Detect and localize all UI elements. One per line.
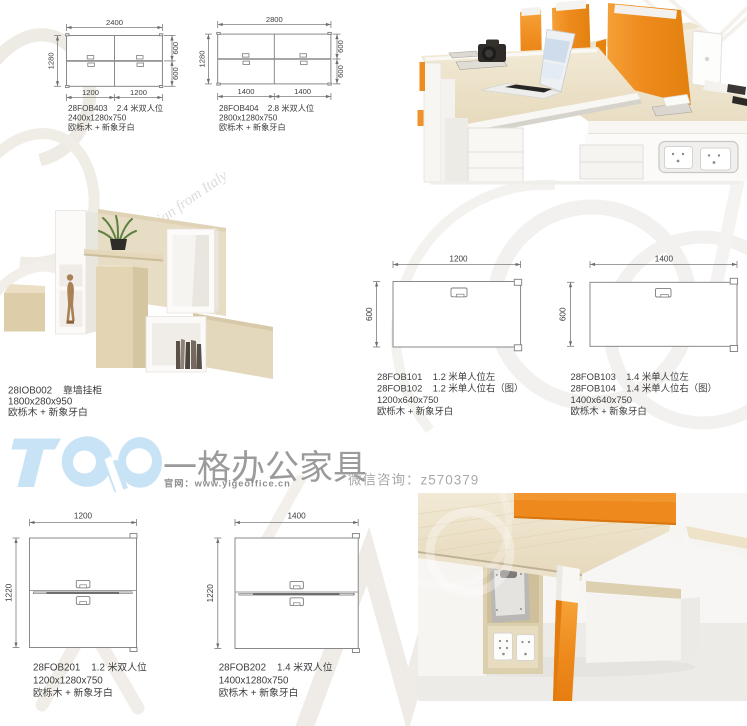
svg-text:1400: 1400	[294, 87, 311, 96]
svg-text:600: 600	[171, 67, 180, 80]
svg-text:欧栎木 + 新象牙白: 欧栎木 + 新象牙白	[33, 686, 113, 699]
svg-text:600: 600	[336, 65, 345, 78]
svg-text:1200: 1200	[82, 88, 99, 97]
svg-text:28FOB404 2.8 米双人位: 28FOB404 2.8 米双人位	[219, 103, 314, 113]
svg-text:1200x1280x750: 1200x1280x750	[33, 675, 103, 686]
svg-text:28FOB103 1.4 米单人位左: 28FOB103 1.4 米单人位左	[571, 371, 689, 382]
svg-text:1400: 1400	[238, 87, 255, 96]
svg-text:1400: 1400	[287, 512, 306, 521]
svg-text:600: 600	[336, 40, 345, 53]
svg-text:1220: 1220	[5, 583, 14, 602]
svg-text:28FOB104 1.4 米单人位右（图）: 28FOB104 1.4 米单人位右（图）	[571, 383, 717, 394]
svg-text:600: 600	[559, 307, 568, 321]
svg-text:2800: 2800	[266, 15, 283, 24]
svg-text:600: 600	[171, 42, 180, 55]
svg-text:1220: 1220	[206, 584, 215, 603]
svg-text:微信咨询：z570379: 微信咨询：z570379	[348, 473, 479, 488]
svg-text:1200: 1200	[130, 88, 147, 97]
svg-text:1200x640x750: 1200x640x750	[377, 394, 439, 405]
svg-text:欧栎木 + 新象牙白: 欧栎木 + 新象牙白	[219, 686, 299, 699]
svg-text:28FOB403 2.4 米双人位: 28FOB403 2.4 米双人位	[68, 103, 163, 113]
svg-text:1280: 1280	[197, 51, 206, 68]
svg-text:欧栎木 + 新象牙白: 欧栎木 + 新象牙白	[68, 122, 135, 132]
svg-text:600: 600	[365, 307, 374, 321]
svg-text:1200: 1200	[449, 255, 468, 264]
svg-text:官网：www.yigeoffice.cn: 官网：www.yigeoffice.cn	[164, 478, 291, 489]
svg-text:1400: 1400	[655, 255, 674, 264]
svg-text:欧栎木 + 新象牙白: 欧栎木 + 新象牙白	[571, 406, 647, 417]
svg-text:2800x1280x750: 2800x1280x750	[219, 113, 278, 122]
svg-text:28FOB101 1.2 米单人位左: 28FOB101 1.2 米单人位左	[377, 371, 495, 382]
svg-text:2400: 2400	[106, 18, 123, 27]
svg-text:1800x280x950: 1800x280x950	[8, 397, 73, 408]
svg-text:欧栎木 + 新象牙白: 欧栎木 + 新象牙白	[377, 406, 453, 417]
svg-text:1400x1280x750: 1400x1280x750	[219, 675, 289, 686]
svg-text:1400x640x750: 1400x640x750	[571, 394, 633, 405]
svg-text:28IOB002 靠墙挂柜: 28IOB002 靠墙挂柜	[8, 384, 102, 397]
svg-text:28FOB202 1.4 米双人位: 28FOB202 1.4 米双人位	[219, 661, 333, 674]
svg-text:28FOB102 1.2 米单人位右（图）: 28FOB102 1.2 米单人位右（图）	[377, 383, 523, 394]
svg-text:欧栎木 + 新象牙白: 欧栎木 + 新象牙白	[8, 406, 88, 419]
svg-text:1280: 1280	[47, 52, 56, 69]
svg-text:28FOB201 1.2 米双人位: 28FOB201 1.2 米双人位	[33, 661, 147, 674]
svg-text:2400x1280x750: 2400x1280x750	[68, 113, 127, 122]
svg-text:欧栎木 + 新象牙白: 欧栎木 + 新象牙白	[219, 122, 286, 132]
svg-text:1200: 1200	[74, 512, 93, 521]
